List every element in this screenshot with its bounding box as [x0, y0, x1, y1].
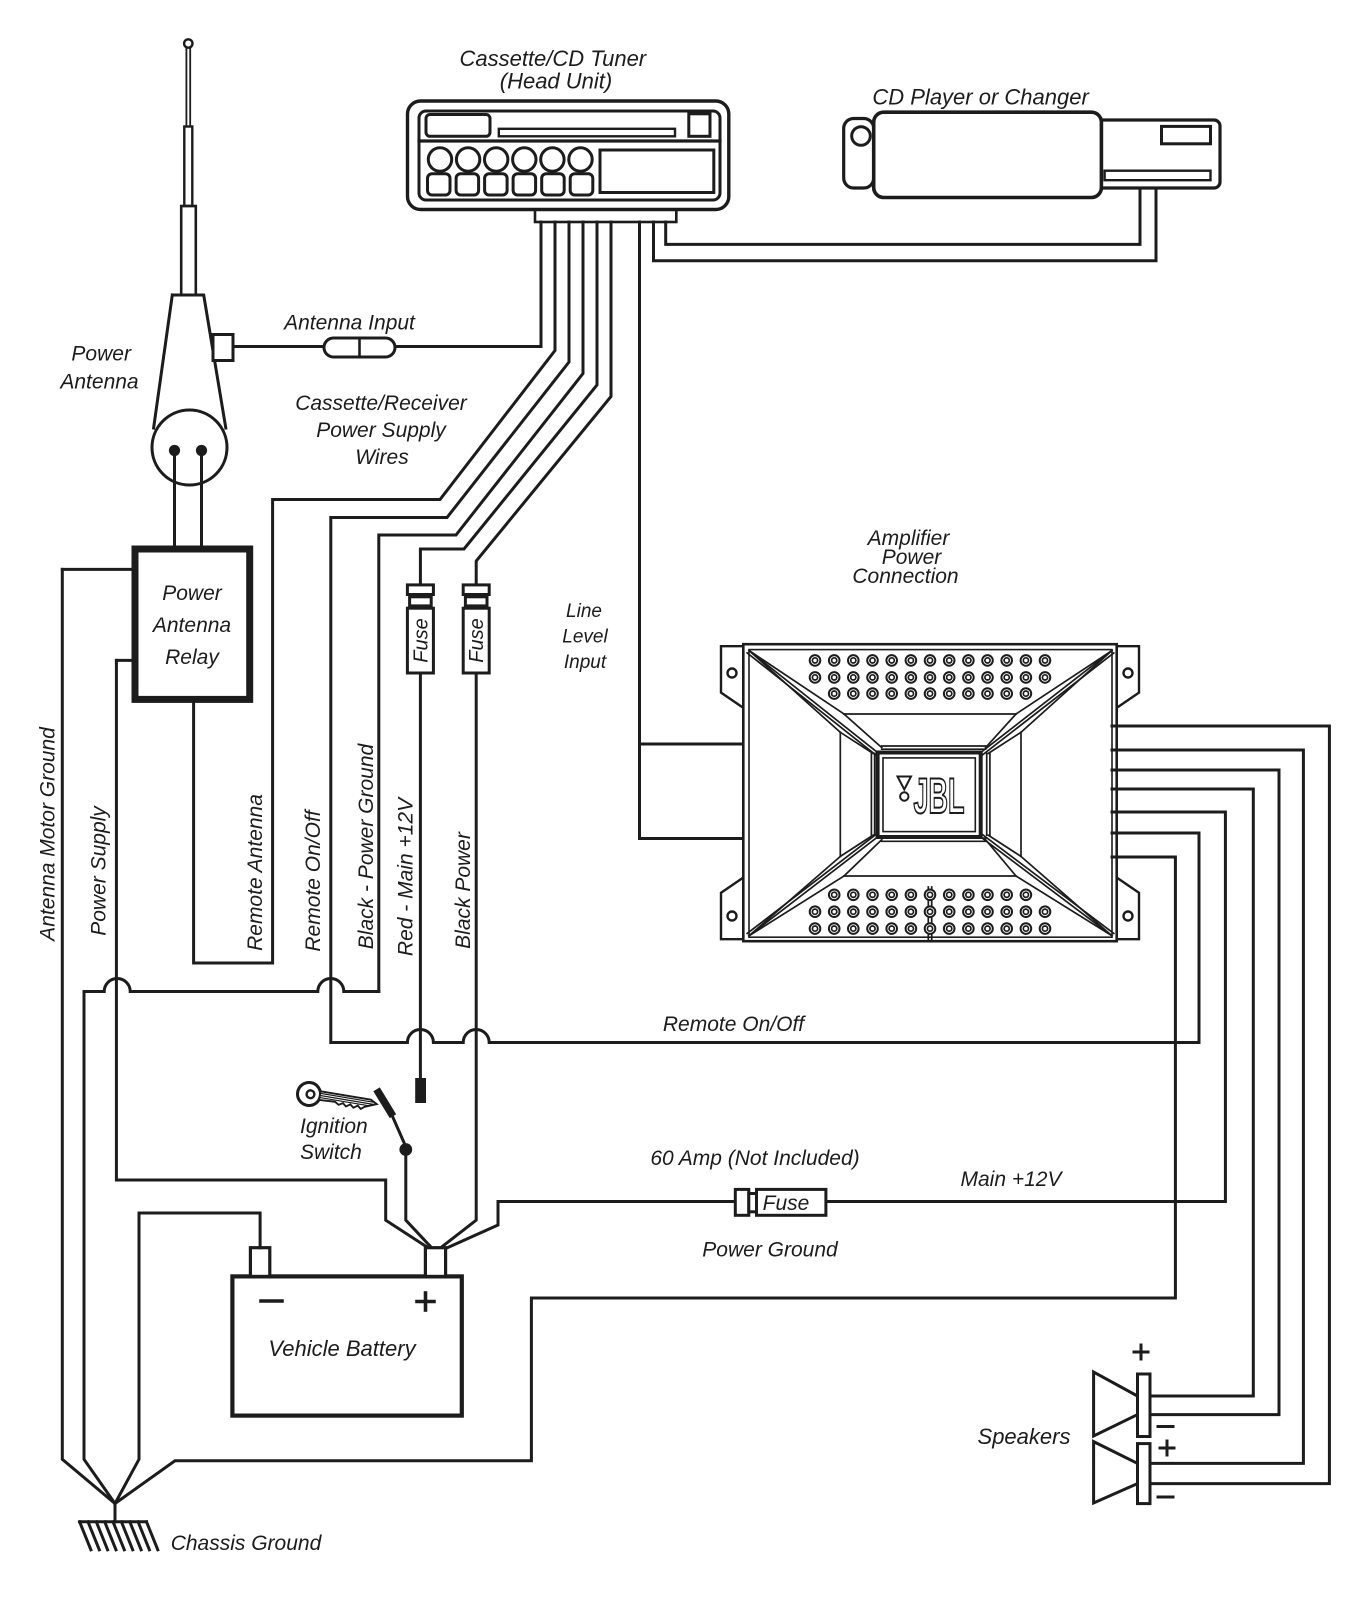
svg-text:Cassette/Receiver: Cassette/Receiver [295, 392, 468, 415]
svg-text:60 Amp (Not Included): 60 Amp (Not Included) [650, 1147, 859, 1170]
svg-text:Speakers: Speakers [978, 1424, 1071, 1449]
svg-text:Relay: Relay [165, 646, 220, 669]
svg-text:Antenna Input: Antenna Input [282, 312, 416, 335]
svg-text:Vehicle Battery: Vehicle Battery [268, 1336, 417, 1361]
svg-text:Wires: Wires [355, 446, 409, 469]
svg-text:Antenna: Antenna [58, 371, 138, 394]
svg-text:Antenna Motor Ground: Antenna Motor Ground [37, 726, 60, 943]
svg-text:Power Supply: Power Supply [88, 805, 111, 936]
svg-text:Ignition: Ignition [300, 1115, 368, 1138]
svg-text:JBL: JBL [914, 768, 965, 824]
svg-text:Switch: Switch [300, 1141, 362, 1164]
svg-text:Black - Power Ground: Black - Power Ground [355, 742, 378, 949]
svg-text:Connection: Connection [852, 565, 958, 588]
svg-text:Input: Input [564, 652, 607, 673]
svg-text:(Head Unit): (Head Unit) [500, 69, 612, 94]
svg-text:Main +12V: Main +12V [961, 1168, 1064, 1191]
svg-text:Fuse: Fuse [410, 618, 432, 662]
svg-text:Red - Main +12V: Red - Main +12V [395, 796, 418, 956]
svg-text:Cassette/CD Tuner: Cassette/CD Tuner [459, 46, 647, 71]
svg-text:Power: Power [71, 343, 132, 366]
svg-text:Remote On/Off: Remote On/Off [302, 808, 325, 951]
svg-text:CD Player or Changer: CD Player or Changer [872, 85, 1090, 110]
svg-text:Remote Antenna: Remote Antenna [244, 794, 267, 951]
svg-text:Line: Line [566, 601, 602, 622]
svg-text:Power Supply: Power Supply [316, 419, 447, 442]
svg-text:Antenna: Antenna [151, 614, 231, 637]
svg-text:Chassis Ground: Chassis Ground [171, 1532, 323, 1555]
svg-text:Fuse: Fuse [466, 618, 488, 662]
svg-text:Black Power: Black Power [452, 831, 475, 949]
svg-text:Level: Level [562, 627, 608, 648]
svg-text:Power Ground: Power Ground [702, 1239, 839, 1262]
svg-text:Remote On/Off: Remote On/Off [663, 1013, 806, 1036]
svg-text:Power: Power [162, 582, 223, 605]
svg-text:Fuse: Fuse [763, 1192, 810, 1215]
